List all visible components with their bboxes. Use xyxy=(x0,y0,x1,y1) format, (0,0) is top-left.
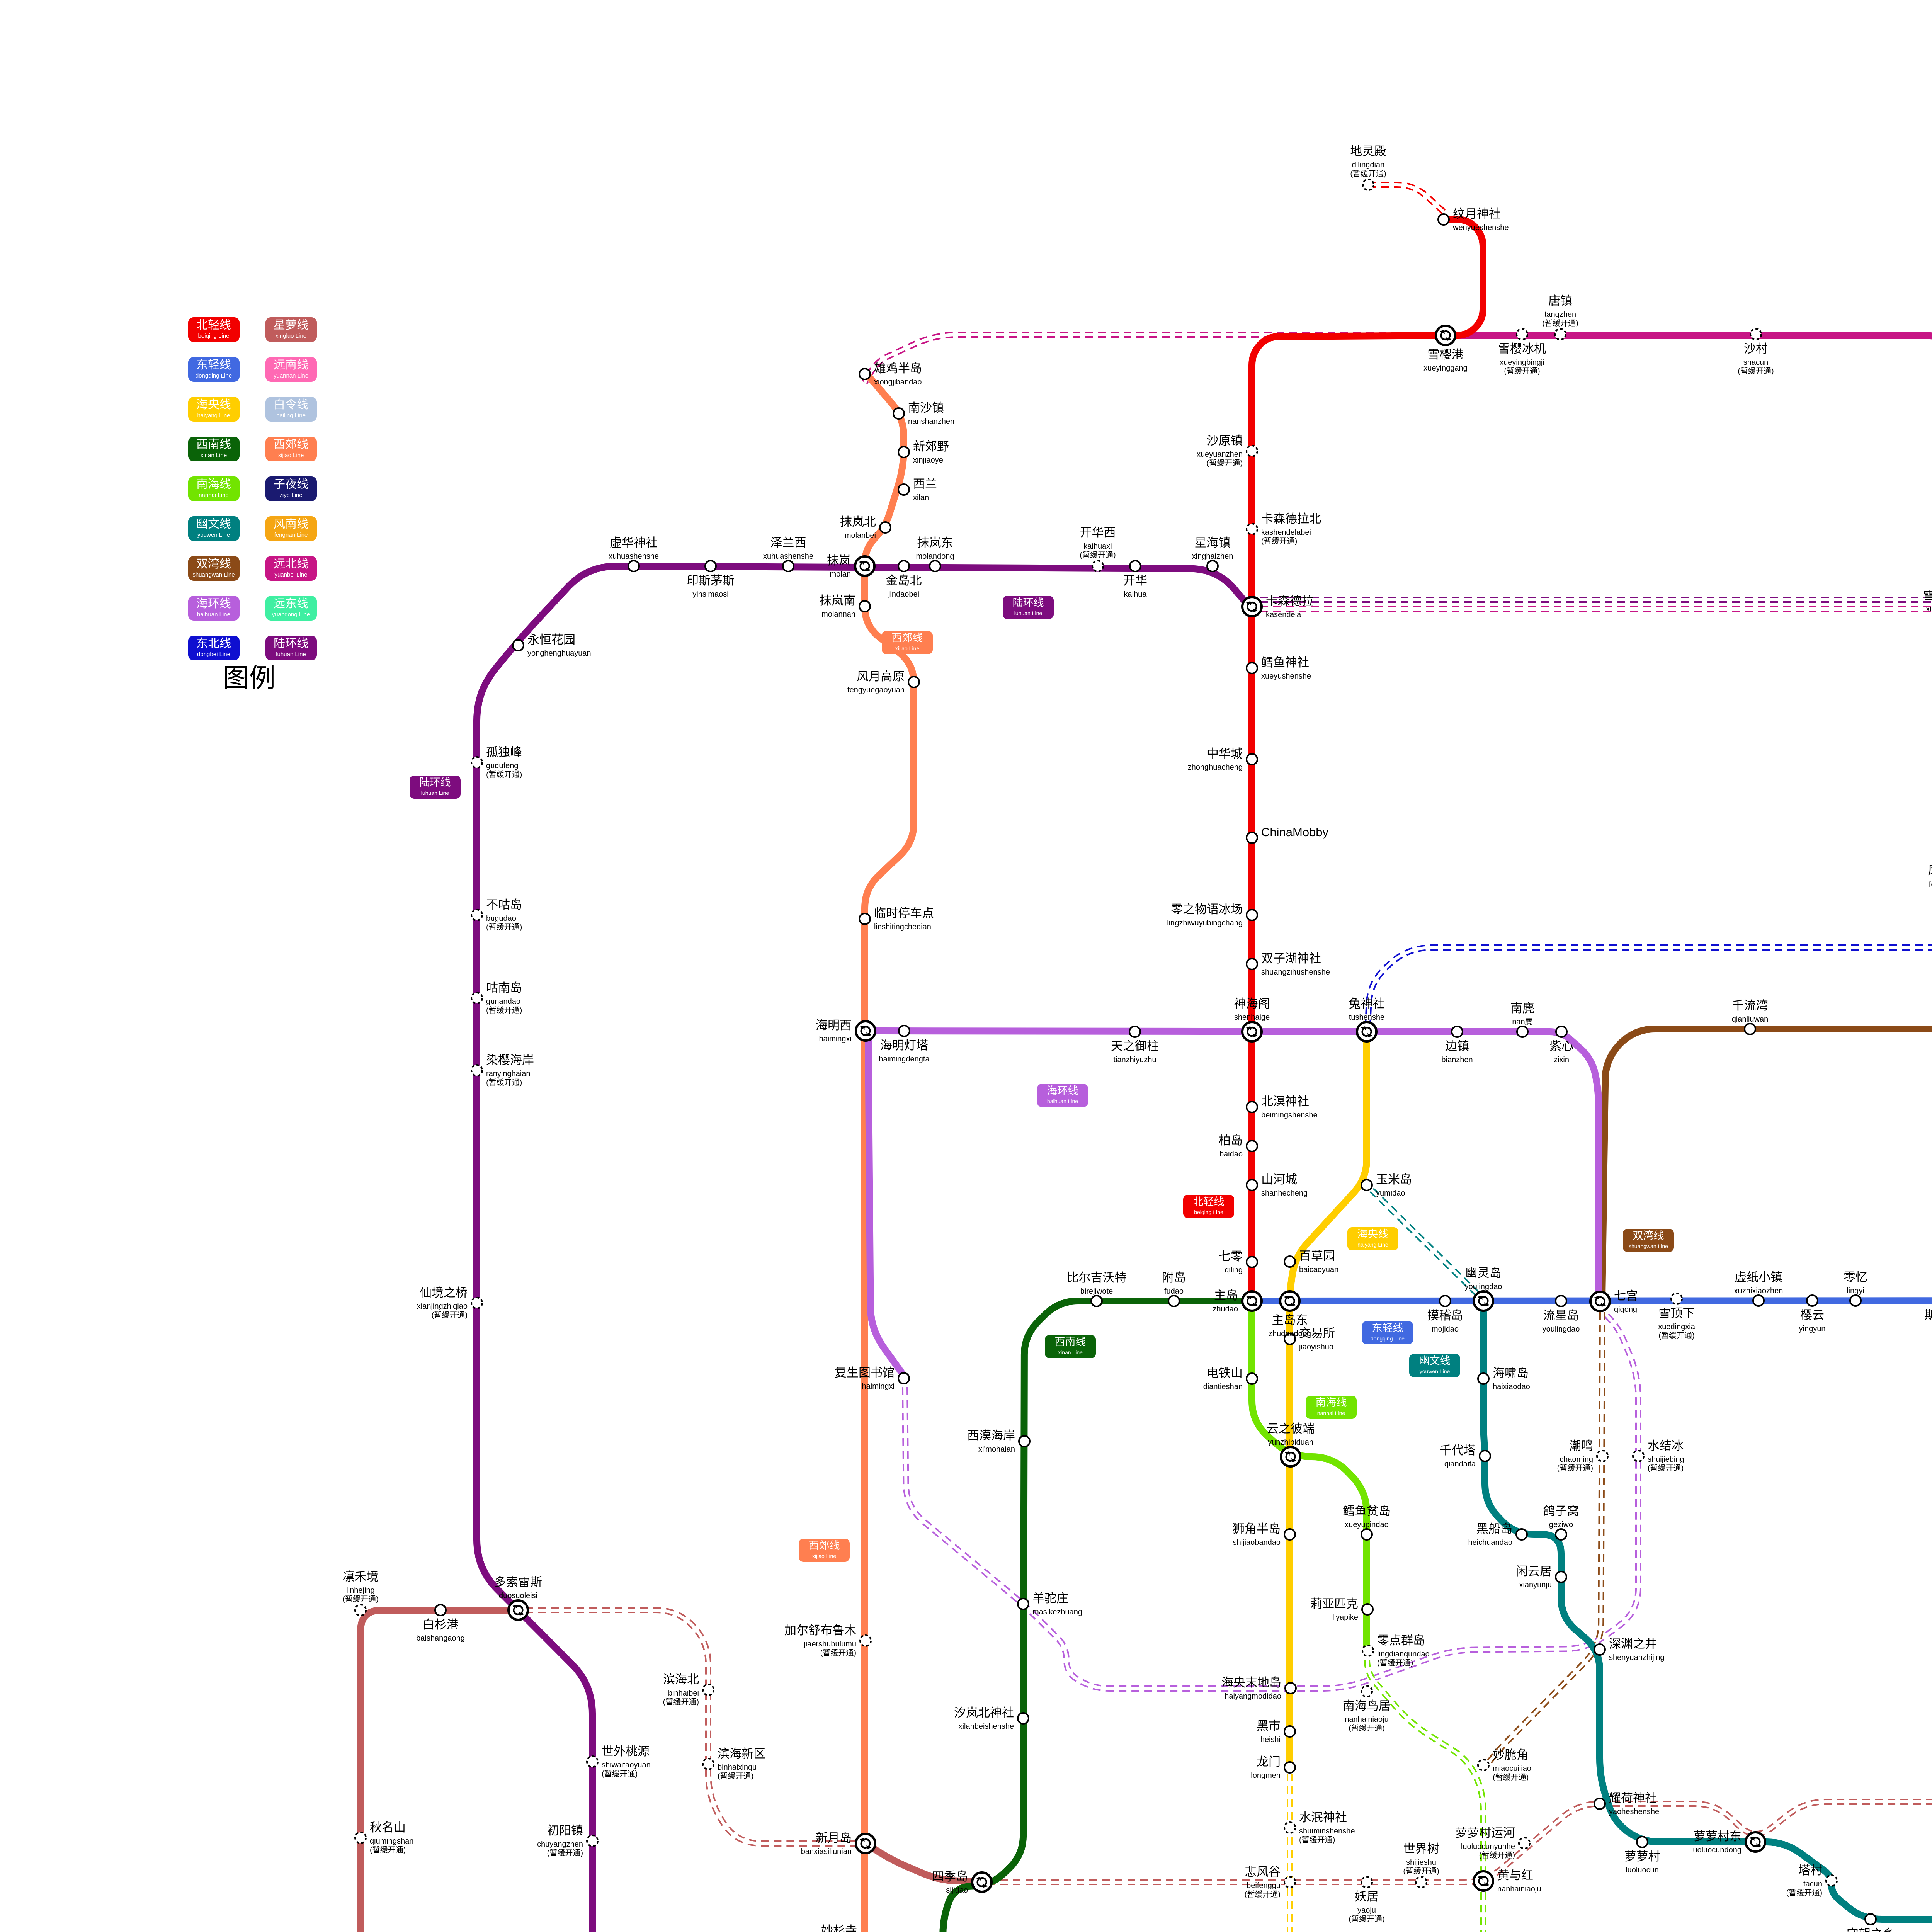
svg-text:(暂缓开通): (暂缓开通) xyxy=(370,1845,406,1854)
svg-text:兔神社: 兔神社 xyxy=(1349,997,1385,1010)
svg-text:雪樱冰机: 雪樱冰机 xyxy=(1498,342,1546,355)
svg-text:初阳镇: 初阳镇 xyxy=(547,1824,583,1837)
svg-text:耀荷神社: 耀荷神社 xyxy=(1609,1791,1657,1805)
svg-text:虚华神社: 虚华神社 xyxy=(610,536,658,549)
svg-text:守望之乡: 守望之乡 xyxy=(1847,1927,1895,1932)
svg-text:banxiasiliunian: banxiasiliunian xyxy=(801,1847,852,1856)
svg-text:汐岚北神社: 汐岚北神社 xyxy=(954,1706,1014,1719)
svg-text:斯波利亚: 斯波利亚 xyxy=(1924,1308,1932,1322)
svg-text:海央线: 海央线 xyxy=(1357,1228,1389,1240)
svg-text:七零: 七零 xyxy=(1219,1250,1243,1263)
svg-text:莉亚匹克: 莉亚匹克 xyxy=(1310,1597,1358,1611)
svg-text:(暂缓开通): (暂缓开通) xyxy=(486,1078,522,1087)
svg-text:shenhaige: shenhaige xyxy=(1234,1013,1270,1022)
svg-text:qiandaita: qiandaita xyxy=(1444,1460,1476,1468)
svg-text:金岛北: 金岛北 xyxy=(886,574,922,587)
svg-text:星萝线: 星萝线 xyxy=(274,319,308,332)
svg-text:xuhuashenshe: xuhuashenshe xyxy=(763,552,813,561)
svg-text:qigong: qigong xyxy=(1614,1305,1637,1314)
svg-text:yuannan Line: yuannan Line xyxy=(274,372,308,379)
svg-text:海环线: 海环线 xyxy=(196,597,231,610)
svg-text:零点群岛: 零点群岛 xyxy=(1377,1634,1425,1647)
svg-text:xueyupindao: xueyupindao xyxy=(1345,1520,1388,1529)
svg-text:中华城: 中华城 xyxy=(1207,747,1243,760)
svg-text:西漠海岸: 西漠海岸 xyxy=(967,1429,1015,1442)
svg-text:海明西: 海明西 xyxy=(816,1019,852,1032)
svg-text:shijiaobandao: shijiaobandao xyxy=(1233,1538,1281,1547)
svg-text:(暂缓开通): (暂缓开通) xyxy=(1648,1464,1684,1473)
svg-text:kaihuaxi: kaihuaxi xyxy=(1083,542,1112,551)
svg-text:xinghaizhen: xinghaizhen xyxy=(1192,552,1233,561)
svg-text:shiwaitaoyuan: shiwaitaoyuan xyxy=(602,1761,651,1769)
svg-text:chaoming: chaoming xyxy=(1560,1455,1593,1464)
svg-text:(暂缓开通): (暂缓开通) xyxy=(1493,1773,1529,1782)
svg-text:(暂缓开通): (暂缓开通) xyxy=(432,1311,468,1320)
svg-text:xilan: xilan xyxy=(913,493,929,502)
svg-text:(暂缓开通): (暂缓开通) xyxy=(1542,319,1578,328)
svg-text:dongqing Line: dongqing Line xyxy=(1371,1335,1405,1342)
svg-text:(暂缓开通): (暂缓开通) xyxy=(1245,1890,1281,1899)
svg-text:wenyueshenshe: wenyueshenshe xyxy=(1452,223,1509,232)
svg-text:xueyinggang: xueyinggang xyxy=(1423,364,1467,372)
svg-text:雄鸡半岛: 雄鸡半岛 xyxy=(874,362,922,375)
svg-text:youwen Line: youwen Line xyxy=(1420,1368,1450,1374)
svg-text:抹岚东: 抹岚东 xyxy=(917,536,953,549)
svg-text:海环线: 海环线 xyxy=(1047,1085,1078,1097)
svg-text:gunandao: gunandao xyxy=(486,997,520,1006)
svg-text:beimingshenshe: beimingshenshe xyxy=(1261,1111,1318,1119)
svg-text:零忆: 零忆 xyxy=(1844,1270,1867,1284)
svg-text:luhuan Line: luhuan Line xyxy=(421,790,449,796)
svg-text:(暂缓开通): (暂缓开通) xyxy=(1080,551,1116,560)
svg-text:南海线: 南海线 xyxy=(196,478,231,491)
svg-text:nanhainiaoju: nanhainiaoju xyxy=(1497,1885,1541,1893)
svg-text:xi'mohaian: xi'mohaian xyxy=(978,1445,1015,1454)
svg-text:樱云: 樱云 xyxy=(1800,1308,1824,1322)
svg-text:新月岛: 新月岛 xyxy=(816,1831,852,1845)
svg-text:双湾线: 双湾线 xyxy=(196,558,231,570)
svg-text:(暂缓开通): (暂缓开通) xyxy=(547,1849,583,1857)
svg-text:西郊线: 西郊线 xyxy=(892,632,923,644)
svg-text:shuijiebing: shuijiebing xyxy=(1648,1455,1684,1464)
svg-text:西兰: 西兰 xyxy=(913,477,937,491)
svg-text:haiyang Line: haiyang Line xyxy=(197,412,230,419)
svg-text:dongqing Line: dongqing Line xyxy=(196,372,232,379)
svg-text:(暂缓开通): (暂缓开通) xyxy=(486,923,522,932)
svg-text:yinsimaosi: yinsimaosi xyxy=(692,590,728,599)
svg-text:nan麂: nan麂 xyxy=(1512,1017,1532,1026)
svg-text:塔村: 塔村 xyxy=(1798,1864,1822,1877)
svg-text:xijiao Line: xijiao Line xyxy=(812,1553,836,1559)
svg-text:ziye Line: ziye Line xyxy=(279,492,302,498)
svg-text:xijiao Line: xijiao Line xyxy=(278,452,304,459)
svg-text:dongbei Line: dongbei Line xyxy=(197,651,230,658)
svg-text:ranyinghaian: ranyinghaian xyxy=(486,1070,531,1078)
svg-text:风南线: 风南线 xyxy=(274,518,308,531)
svg-text:shacun: shacun xyxy=(1743,358,1769,367)
svg-text:幽灵岛: 幽灵岛 xyxy=(1466,1266,1502,1280)
svg-text:(暂缓开通): (暂缓开通) xyxy=(1261,537,1297,546)
svg-text:西郊线: 西郊线 xyxy=(809,1540,840,1551)
svg-text:海央末地岛: 海央末地岛 xyxy=(1221,1676,1281,1689)
svg-text:抹岚南: 抹岚南 xyxy=(820,594,855,607)
svg-text:baishangaong: baishangaong xyxy=(416,1634,465,1643)
svg-text:(暂缓开通): (暂缓开通) xyxy=(1207,459,1243,468)
svg-text:(暂缓开通): (暂缓开通) xyxy=(1299,1835,1335,1844)
svg-text:西郊线: 西郊线 xyxy=(274,438,308,451)
svg-text:水结冰: 水结冰 xyxy=(1648,1439,1684,1452)
svg-text:lingyi: lingyi xyxy=(1847,1287,1864,1295)
svg-text:妙杉寺: 妙杉寺 xyxy=(821,1924,857,1932)
svg-text:零之物语冰场: 零之物语冰场 xyxy=(1171,903,1243,916)
svg-text:youwen Line: youwen Line xyxy=(197,532,230,538)
svg-text:流星岛: 流星岛 xyxy=(1543,1309,1579,1322)
svg-text:萝萝村东: 萝萝村东 xyxy=(1694,1830,1742,1843)
svg-text:双湾线: 双湾线 xyxy=(1633,1230,1664,1242)
svg-text:附岛: 附岛 xyxy=(1162,1271,1186,1284)
svg-text:xianyunju: xianyunju xyxy=(1519,1581,1552,1589)
svg-text:yingyun: yingyun xyxy=(1799,1325,1826,1333)
svg-text:风南海岸: 风南海岸 xyxy=(1928,864,1932,878)
svg-text:(暂缓开通): (暂缓开通) xyxy=(1350,169,1386,178)
svg-text:xuhuashenshe: xuhuashenshe xyxy=(609,552,659,561)
svg-text:图例: 图例 xyxy=(223,663,276,693)
svg-text:远北线: 远北线 xyxy=(274,558,308,570)
svg-text:(暂缓开通): (暂缓开通) xyxy=(663,1697,699,1706)
svg-text:羊驼庄: 羊驼庄 xyxy=(1032,1592,1068,1605)
svg-text:潮鸣: 潮鸣 xyxy=(1569,1439,1593,1452)
svg-text:陆环线: 陆环线 xyxy=(274,637,308,650)
svg-text:nanshanzhen: nanshanzhen xyxy=(908,417,954,426)
svg-text:远东线: 远东线 xyxy=(274,597,308,610)
svg-text:jiaoyishuo: jiaoyishuo xyxy=(1299,1343,1333,1351)
svg-text:shuangwan Line: shuangwan Line xyxy=(1629,1243,1668,1249)
svg-text:binhaibei: binhaibei xyxy=(668,1689,699,1697)
svg-text:陆环线: 陆环线 xyxy=(420,777,451,788)
svg-text:(暂缓开通): (暂缓开通) xyxy=(1349,1724,1384,1733)
svg-text:xiongjibandao: xiongjibandao xyxy=(874,378,922,386)
svg-text:多索雷斯: 多索雷斯 xyxy=(494,1575,542,1589)
svg-text:jindaobei: jindaobei xyxy=(888,590,919,599)
svg-text:geziwo: geziwo xyxy=(1549,1520,1573,1529)
svg-text:xinan Line: xinan Line xyxy=(201,452,227,459)
svg-text:shuangwan Line: shuangwan Line xyxy=(192,571,235,578)
svg-text:(暂缓开通): (暂缓开通) xyxy=(1557,1464,1593,1473)
svg-text:kashendelabei: kashendelabei xyxy=(1261,528,1311,537)
svg-text:(暂缓开通): (暂缓开通) xyxy=(486,1006,522,1015)
svg-text:滨海新区: 滨海新区 xyxy=(718,1747,765,1760)
svg-text:molandong: molandong xyxy=(916,552,954,561)
svg-text:(暂缓开通): (暂缓开通) xyxy=(1738,367,1774,376)
svg-text:chuyangzhen: chuyangzhen xyxy=(537,1840,583,1849)
svg-text:yunzhibiduan: yunzhibiduan xyxy=(1268,1438,1313,1447)
svg-text:鸽子窝: 鸽子窝 xyxy=(1543,1504,1579,1518)
svg-text:yuandong Line: yuandong Line xyxy=(272,611,310,618)
svg-text:xueyuanzhen: xueyuanzhen xyxy=(1197,450,1243,459)
svg-text:tianzhiyuzhu: tianzhiyuzhu xyxy=(1113,1056,1156,1064)
svg-text:狮角半岛: 狮角半岛 xyxy=(1233,1522,1281,1536)
svg-text:xilanbeishenshe: xilanbeishenshe xyxy=(959,1722,1014,1731)
svg-text:白杉港: 白杉港 xyxy=(423,1618,459,1631)
svg-text:不咕岛: 不咕岛 xyxy=(486,898,522,912)
svg-text:百草园: 百草园 xyxy=(1299,1249,1335,1263)
svg-text:(暂缓开通): (暂缓开通) xyxy=(486,770,522,779)
svg-text:电铁山: 电铁山 xyxy=(1207,1366,1243,1380)
svg-text:比尔吉沃特: 比尔吉沃特 xyxy=(1067,1271,1127,1284)
svg-text:北轻线: 北轻线 xyxy=(196,319,231,332)
svg-text:xinjiaoye: xinjiaoye xyxy=(913,456,943,464)
svg-text:(暂缓开通): (暂缓开通) xyxy=(1403,1867,1439,1876)
svg-text:海明灯塔: 海明灯塔 xyxy=(880,1039,928,1052)
svg-text:天之御柱: 天之御柱 xyxy=(1111,1039,1159,1053)
svg-text:duosuoleisi: duosuoleisi xyxy=(499,1592,537,1600)
svg-text:仙境之桥: 仙境之桥 xyxy=(420,1286,468,1299)
svg-text:bailing Line: bailing Line xyxy=(276,412,306,419)
svg-text:卡森德拉北: 卡森德拉北 xyxy=(1261,512,1321,526)
svg-text:东轻线: 东轻线 xyxy=(196,359,231,371)
svg-text:临时停车点: 临时停车点 xyxy=(874,906,934,920)
svg-text:yaoju: yaoju xyxy=(1357,1906,1376,1915)
svg-text:binhaixinqu: binhaixinqu xyxy=(718,1763,757,1772)
svg-text:海央线: 海央线 xyxy=(196,398,231,411)
svg-text:tushenshe: tushenshe xyxy=(1349,1013,1384,1022)
svg-text:beiqing Line: beiqing Line xyxy=(198,333,230,339)
svg-text:柏岛: 柏岛 xyxy=(1219,1134,1243,1147)
svg-text:黄与红: 黄与红 xyxy=(1497,1869,1533,1882)
svg-text:卡森德拉: 卡森德拉 xyxy=(1266,594,1314,608)
svg-text:baidao: baidao xyxy=(1219,1150,1243,1158)
svg-text:shijieshu: shijieshu xyxy=(1406,1858,1436,1867)
svg-text:主岛东: 主岛东 xyxy=(1272,1313,1308,1327)
svg-text:heichuandao: heichuandao xyxy=(1468,1538,1512,1547)
svg-text:印斯茅斯: 印斯茅斯 xyxy=(687,574,735,587)
svg-text:(暂缓开通): (暂缓开通) xyxy=(1349,1915,1384,1923)
svg-text:(暂缓开通): (暂缓开通) xyxy=(1377,1658,1413,1667)
svg-text:孤独峰: 孤独峰 xyxy=(486,745,522,759)
svg-text:nanhainiaoju: nanhainiaoju xyxy=(1345,1715,1388,1724)
svg-text:幽文线: 幽文线 xyxy=(196,518,231,531)
svg-text:凛禾境: 凛禾境 xyxy=(343,1570,379,1583)
svg-text:beifenggu: beifenggu xyxy=(1247,1881,1281,1890)
svg-text:xianjingzhiqiao: xianjingzhiqiao xyxy=(417,1302,468,1311)
svg-text:linshitingchedian: linshitingchedian xyxy=(874,923,931,931)
svg-text:双子湖神社: 双子湖神社 xyxy=(1261,952,1321,965)
svg-text:(暂缓开通): (暂缓开通) xyxy=(1786,1888,1822,1897)
svg-text:玉米岛: 玉米岛 xyxy=(1376,1173,1412,1186)
svg-text:haimingxi: haimingxi xyxy=(862,1382,895,1391)
svg-text:子夜线: 子夜线 xyxy=(274,478,308,491)
svg-text:咕南岛: 咕南岛 xyxy=(486,981,522,995)
svg-text:黑船岛: 黑船岛 xyxy=(1476,1522,1512,1536)
svg-text:西南线: 西南线 xyxy=(196,438,231,451)
svg-text:东轻线: 东轻线 xyxy=(1372,1322,1403,1334)
svg-text:zixin: zixin xyxy=(1554,1056,1569,1064)
svg-text:龙门: 龙门 xyxy=(1257,1755,1281,1769)
svg-text:fudao: fudao xyxy=(1164,1287,1184,1296)
svg-text:longmen: longmen xyxy=(1251,1771,1281,1780)
svg-text:molan: molan xyxy=(830,570,851,578)
svg-text:西南线: 西南线 xyxy=(1055,1336,1086,1348)
svg-text:nanhai Line: nanhai Line xyxy=(1317,1410,1345,1416)
svg-text:molannan: molannan xyxy=(821,610,855,619)
svg-text:远南线: 远南线 xyxy=(274,359,308,371)
svg-text:lingzhiwuyubingchang: lingzhiwuyubingchang xyxy=(1167,919,1243,927)
svg-text:沙原镇: 沙原镇 xyxy=(1207,434,1243,447)
svg-text:tacun: tacun xyxy=(1803,1880,1822,1888)
svg-text:shanhecheng: shanhecheng xyxy=(1261,1189,1308,1197)
svg-text:bugudao: bugudao xyxy=(486,914,516,923)
svg-text:xingluo Line: xingluo Line xyxy=(276,333,306,339)
svg-text:mojidao: mojidao xyxy=(1432,1325,1459,1333)
svg-text:黑市: 黑市 xyxy=(1257,1719,1281,1733)
svg-text:masikezhuang: masikezhuang xyxy=(1032,1608,1082,1616)
svg-text:(暂缓开通): (暂缓开通) xyxy=(1658,1331,1694,1340)
svg-text:qiumingshan: qiumingshan xyxy=(370,1837,413,1845)
svg-text:水泯神社: 水泯神社 xyxy=(1299,1811,1347,1824)
svg-text:xuejishenshe: xuejishenshe xyxy=(1926,605,1932,613)
svg-text:南海线: 南海线 xyxy=(1316,1397,1347,1408)
svg-text:世外桃源: 世外桃源 xyxy=(602,1745,650,1758)
svg-text:shuangzihushenshe: shuangzihushenshe xyxy=(1261,968,1330,976)
svg-text:haihuan Line: haihuan Line xyxy=(197,611,230,618)
svg-text:鳕鱼贫岛: 鳕鱼贫岛 xyxy=(1343,1504,1391,1518)
svg-text:北轻线: 北轻线 xyxy=(1193,1196,1225,1207)
svg-text:深渊之井: 深渊之井 xyxy=(1609,1637,1657,1651)
svg-text:xueyushenshe: xueyushenshe xyxy=(1261,672,1311,680)
svg-text:luoluocundong: luoluocundong xyxy=(1691,1846,1742,1854)
svg-text:yaoheshenshe: yaoheshenshe xyxy=(1609,1808,1659,1816)
svg-text:四季岛: 四季岛 xyxy=(932,1870,968,1883)
svg-text:唐镇: 唐镇 xyxy=(1548,294,1572,308)
svg-text:(暂缓开通): (暂缓开通) xyxy=(1479,1851,1515,1860)
svg-text:liyapike: liyapike xyxy=(1332,1613,1358,1622)
svg-text:摸稽岛: 摸稽岛 xyxy=(1427,1309,1463,1322)
svg-text:miaocuijiao: miaocuijiao xyxy=(1493,1764,1531,1773)
svg-text:边镇: 边镇 xyxy=(1445,1039,1469,1053)
svg-text:妖居: 妖居 xyxy=(1355,1890,1379,1903)
svg-text:luoluocunyunhe: luoluocunyunhe xyxy=(1461,1842,1515,1851)
svg-text:纹月神社: 纹月神社 xyxy=(1453,207,1501,221)
svg-text:diantieshan: diantieshan xyxy=(1203,1383,1243,1391)
svg-text:千流湾: 千流湾 xyxy=(1732,999,1768,1012)
svg-text:幽文线: 幽文线 xyxy=(1419,1355,1451,1367)
svg-text:youlingdao: youlingdao xyxy=(1465,1282,1502,1291)
svg-text:luoluocun: luoluocun xyxy=(1626,1866,1659,1874)
svg-text:luhuan Line: luhuan Line xyxy=(1014,610,1043,616)
svg-text:云之彼端: 云之彼端 xyxy=(1267,1422,1315,1435)
svg-text:复生图书馆: 复生图书馆 xyxy=(835,1366,895,1379)
svg-text:妙脆角: 妙脆角 xyxy=(1493,1748,1529,1762)
svg-text:白令线: 白令线 xyxy=(274,398,308,411)
svg-text:bianzhen: bianzhen xyxy=(1441,1056,1473,1064)
svg-text:泽兰西: 泽兰西 xyxy=(770,536,806,549)
svg-text:luhuan Line: luhuan Line xyxy=(276,651,306,658)
svg-text:fengyuegaoyuan: fengyuegaoyuan xyxy=(847,686,905,694)
svg-text:yumidao: yumidao xyxy=(1376,1189,1405,1197)
svg-text:萝萝村运河: 萝萝村运河 xyxy=(1455,1826,1515,1840)
svg-text:nanhai Line: nanhai Line xyxy=(199,492,229,498)
svg-text:加尔舒布鲁木: 加尔舒布鲁木 xyxy=(784,1624,856,1637)
svg-text:jiaershubulumu: jiaershubulumu xyxy=(803,1640,856,1648)
svg-text:xuedingxia: xuedingxia xyxy=(1658,1323,1696,1331)
svg-text:xuzhixiaozhen: xuzhixiaozhen xyxy=(1734,1287,1783,1295)
svg-text:风月高原: 风月高原 xyxy=(857,670,905,683)
svg-text:xinan Line: xinan Line xyxy=(1058,1349,1083,1355)
svg-text:雪樱港: 雪樱港 xyxy=(1428,348,1464,361)
svg-text:南沙镇: 南沙镇 xyxy=(908,401,944,415)
svg-text:北溟神社: 北溟神社 xyxy=(1261,1095,1309,1108)
svg-text:haihuan Line: haihuan Line xyxy=(1047,1098,1078,1104)
svg-text:qianliuwan: qianliuwan xyxy=(1732,1015,1769,1024)
svg-text:shuiminshenshe: shuiminshenshe xyxy=(1299,1827,1355,1835)
svg-text:shenyuanzhijing: shenyuanzhijing xyxy=(1609,1653,1664,1662)
svg-text:开华西: 开华西 xyxy=(1080,526,1116,539)
svg-text:地灵殿: 地灵殿 xyxy=(1350,145,1386,158)
svg-text:虚纸小镇: 虚纸小镇 xyxy=(1735,1270,1782,1284)
svg-text:beiqing Line: beiqing Line xyxy=(1194,1209,1223,1215)
svg-text:南麂: 南麂 xyxy=(1510,1002,1534,1015)
svg-text:交易所: 交易所 xyxy=(1299,1327,1335,1340)
svg-text:(暂缓开通): (暂缓开通) xyxy=(342,1595,378,1604)
svg-text:紫心: 紫心 xyxy=(1549,1039,1573,1053)
svg-text:(暂缓开通): (暂缓开通) xyxy=(1504,367,1540,376)
svg-text:闲云居: 闲云居 xyxy=(1516,1565,1552,1578)
svg-text:haimingxi: haimingxi xyxy=(819,1035,852,1043)
svg-text:baicaoyuan: baicaoyuan xyxy=(1299,1265,1338,1274)
svg-text:沙村: 沙村 xyxy=(1744,342,1768,355)
svg-text:世界树: 世界树 xyxy=(1403,1842,1439,1855)
svg-text:fengnan Line: fengnan Line xyxy=(274,532,308,538)
svg-text:星海镇: 星海镇 xyxy=(1195,536,1231,549)
svg-text:(暂缓开通): (暂缓开通) xyxy=(820,1648,856,1657)
svg-text:鳕鱼神社: 鳕鱼神社 xyxy=(1261,656,1309,669)
svg-text:lingdianqundao: lingdianqundao xyxy=(1377,1650,1430,1658)
svg-text:zhudao: zhudao xyxy=(1213,1305,1238,1313)
svg-text:抹岚: 抹岚 xyxy=(827,554,851,567)
svg-text:千代塔: 千代塔 xyxy=(1440,1444,1476,1457)
svg-text:萝萝村: 萝萝村 xyxy=(1624,1850,1660,1863)
svg-text:haiyangmodidao: haiyangmodidao xyxy=(1225,1692,1281,1701)
svg-text:xueyingbingji: xueyingbingji xyxy=(1500,358,1544,367)
svg-text:滨海北: 滨海北 xyxy=(663,1673,699,1686)
svg-text:fengnanhaian: fengnanhaian xyxy=(1929,880,1932,889)
svg-text:东北线: 东北线 xyxy=(196,637,231,650)
svg-text:染樱海岸: 染樱海岸 xyxy=(486,1053,534,1067)
svg-text:海啸岛: 海啸岛 xyxy=(1493,1366,1529,1380)
svg-text:ChinaMobby: ChinaMobby xyxy=(1261,825,1329,839)
svg-text:悲风谷: 悲风谷 xyxy=(1245,1865,1281,1879)
svg-text:xijiao Line: xijiao Line xyxy=(895,645,919,651)
svg-text:tangzhen: tangzhen xyxy=(1544,310,1576,319)
svg-text:雪顶下: 雪顶下 xyxy=(1659,1306,1695,1320)
svg-text:haimingdengta: haimingdengta xyxy=(879,1055,930,1063)
svg-text:linhejing: linhejing xyxy=(346,1586,374,1595)
svg-text:haixiaodao: haixiaodao xyxy=(1493,1383,1530,1391)
svg-text:主岛: 主岛 xyxy=(1214,1289,1238,1302)
svg-text:youlingdao: youlingdao xyxy=(1543,1325,1580,1333)
svg-text:开华: 开华 xyxy=(1123,574,1147,587)
svg-text:雪寂神社: 雪寂神社 xyxy=(1923,588,1932,602)
svg-text:神海阁: 神海阁 xyxy=(1234,997,1270,1010)
svg-text:永恒花园: 永恒花园 xyxy=(527,633,575,646)
svg-text:gudufeng: gudufeng xyxy=(486,762,518,770)
svg-text:kaihua: kaihua xyxy=(1124,590,1147,599)
svg-text:七宫: 七宫 xyxy=(1614,1289,1638,1303)
svg-text:zhonghuacheng: zhonghuacheng xyxy=(1188,763,1243,772)
svg-text:(暂缓开通): (暂缓开通) xyxy=(718,1772,753,1781)
svg-text:haiyang Line: haiyang Line xyxy=(1357,1242,1388,1248)
svg-text:抹岚北: 抹岚北 xyxy=(840,515,876,529)
